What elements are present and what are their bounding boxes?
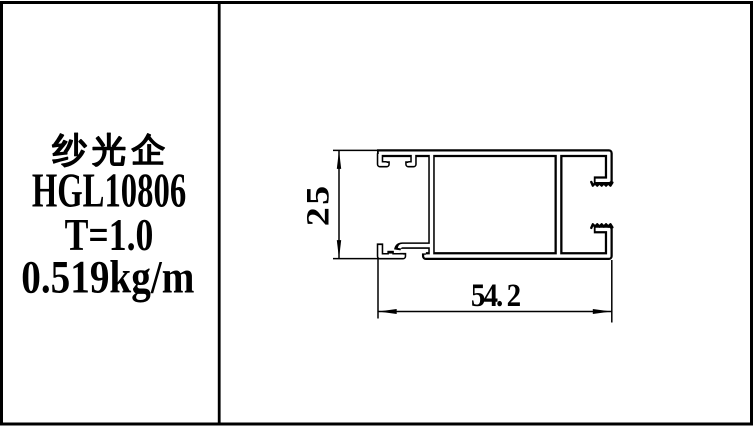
svg-text:0.519kg/m: 0.519kg/m bbox=[21, 251, 194, 303]
svg-text:HGL10806: HGL10806 bbox=[32, 163, 186, 217]
svg-text:54. 2: 54. 2 bbox=[471, 278, 521, 314]
svg-text:25: 25 bbox=[300, 183, 336, 226]
